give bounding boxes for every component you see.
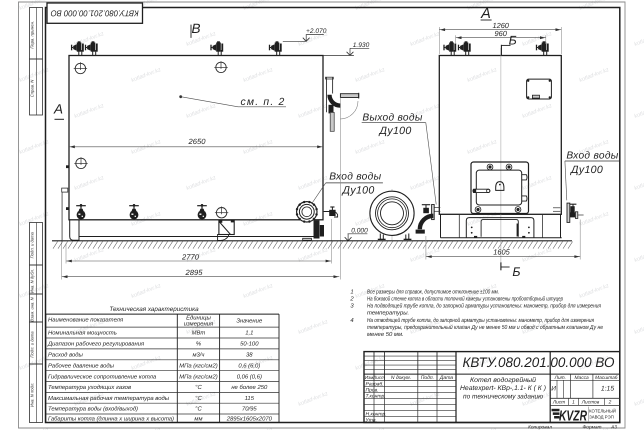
svg-text:1: 1	[350, 288, 353, 295]
svg-text:Вход воды: Вход воды	[329, 172, 381, 183]
svg-text:Утв.: Утв.	[366, 418, 377, 424]
svg-text:2650: 2650	[188, 137, 207, 146]
svg-text:На подводящей трубе котла, д: На подводящей трубе котла, до запорной а…	[367, 302, 602, 309]
svg-text:КОТЕЛЬНЫЙ: КОТЕЛЬНЫЙ	[589, 409, 616, 414]
svg-text:м3/ч: м3/ч	[192, 351, 204, 358]
svg-text:Лит.: Лит.	[554, 375, 566, 381]
svg-text:Температура уходящих газов: Температура уходящих газов	[48, 384, 131, 391]
svg-text:Выход воды: Выход воды	[362, 112, 422, 123]
svg-text:МВт: МВт	[192, 330, 206, 337]
svg-text:Гидравлическое сопротивление к: Гидравлическое сопротивление котла	[48, 373, 157, 380]
svg-text:температуры, предохранительный: температуры, предохранительный клапан Ду…	[367, 324, 604, 331]
svg-text:1:15: 1:15	[601, 386, 614, 393]
svg-text:2: 2	[608, 400, 612, 406]
svg-text:0,06 (0,6): 0,06 (0,6)	[237, 373, 262, 380]
svg-text:Дата: Дата	[439, 375, 453, 381]
svg-text:менее 50 мм.: менее 50 мм.	[367, 331, 404, 338]
svg-text:1.930: 1.930	[353, 42, 370, 49]
svg-text:Температура воды (вход/выход): Температура воды (вход/выход)	[48, 406, 138, 413]
svg-text:1605: 1605	[493, 248, 510, 257]
svg-text:Лист: Лист	[552, 400, 565, 406]
svg-text:Максимальная рабочая температу: Максимальная рабочая температура воды	[48, 395, 170, 402]
svg-text:температуры.: температуры.	[367, 310, 409, 316]
svg-text:0.000: 0.000	[351, 227, 368, 234]
svg-text:Инв. N подл.: Инв. N подл.	[29, 383, 34, 407]
svg-text:На боковой стенке котла в обла: На боковой стенке котла в области топочн…	[367, 295, 564, 302]
svg-text:Техническая характеристика: Техническая характеристика	[109, 306, 199, 313]
svg-text:Единицы: Единицы	[186, 314, 211, 321]
svg-text:0,6 (6,0): 0,6 (6,0)	[238, 362, 260, 369]
svg-text:Габариты котла (длинна х ширин: Габариты котла (длинна х ширина х высота…	[48, 415, 174, 422]
svg-text:Вход воды: Вход воды	[566, 151, 618, 162]
svg-text:Формат: Формат	[582, 424, 601, 430]
svg-text:КВТУ.080.201.00.000 ВО: КВТУ.080.201.00.000 ВО	[50, 9, 138, 19]
svg-text:Все размеры для справок, допус: Все размеры для справок, допустимое откл…	[367, 288, 499, 295]
svg-text:1,1: 1,1	[245, 330, 253, 337]
svg-text:ЗАВОД РЭП: ЗАВОД РЭП	[589, 414, 614, 419]
svg-text:Ду100: Ду100	[341, 185, 374, 197]
svg-text:МПа (кгс/см2): МПа (кгс/см2)	[179, 373, 218, 380]
svg-text:На отводящей трубе котла, до з: На отводящей трубе котла, до запорной ар…	[367, 317, 595, 324]
svg-text:Взам. инв. N: Взам. инв. N	[29, 296, 34, 321]
svg-text:Ду100: Ду100	[570, 164, 603, 176]
svg-text:Подп. и дата: Подп. и дата	[29, 231, 34, 258]
svg-text:2895х1605х2070: 2895х1605х2070	[226, 415, 273, 422]
svg-text:Подп. и дата: Подп. и дата	[29, 331, 34, 358]
svg-text:1: 1	[572, 400, 575, 406]
svg-text:Расход воды: Расход воды	[48, 351, 84, 358]
svg-text:70/95: 70/95	[242, 406, 257, 413]
svg-text:МПа (кгс/см2): МПа (кгс/см2)	[179, 362, 218, 369]
svg-text:Копировал: Копировал	[528, 424, 552, 430]
svg-text:Б: Б	[509, 33, 517, 47]
svg-text:Наименование показателя: Наименование показателя	[48, 317, 124, 324]
svg-text:N докум.: N докум.	[391, 375, 411, 381]
svg-text:2895: 2895	[185, 268, 204, 277]
svg-text:°С: °С	[195, 384, 202, 391]
svg-text:°С: °С	[195, 406, 202, 413]
svg-text:по техническому заданию: по техническому заданию	[463, 393, 543, 400]
svg-text:Рабочее давление воды: Рабочее давление воды	[48, 362, 115, 369]
svg-text:Ду100: Ду100	[378, 125, 411, 137]
svg-text:Номинальная мощность: Номинальная мощность	[48, 330, 117, 337]
svg-text:Подп.: Подп.	[421, 375, 434, 381]
svg-text:Котел водогрейный: Котел водогрейный	[470, 376, 536, 384]
svg-text:+2.070: +2.070	[306, 28, 327, 35]
svg-text:%: %	[196, 341, 201, 348]
svg-text:38: 38	[246, 351, 253, 358]
svg-text:Heatexpert- КВр-,1.1- К ( К ): Heatexpert- КВр-,1.1- К ( К )	[460, 385, 546, 392]
svg-text:Значение: Значение	[236, 318, 263, 325]
svg-text:2: 2	[349, 295, 354, 302]
svg-text:2770: 2770	[181, 252, 200, 261]
svg-text:KVZR: KVZR	[559, 408, 587, 424]
svg-text:115: 115	[245, 395, 255, 402]
svg-text:Перв. примен.: Перв. примен.	[29, 21, 34, 49]
svg-text:Т.контр.: Т.контр.	[366, 394, 386, 400]
svg-text:Б: Б	[512, 265, 520, 279]
svg-text:Лист: Лист	[372, 375, 385, 380]
svg-text:Листов: Листов	[581, 400, 600, 406]
svg-text:960: 960	[495, 29, 508, 38]
svg-text:Масштаб: Масштаб	[595, 375, 618, 381]
svg-text:Масса: Масса	[575, 375, 590, 381]
svg-text:°С: °С	[195, 395, 202, 402]
svg-text:КВТУ.080.201.00.000 ВО: КВТУ.080.201.00.000 ВО	[463, 355, 615, 370]
svg-text:50-100: 50-100	[240, 341, 259, 348]
svg-text:Диапазон рабочего регулировани: Диапазон рабочего регулирования	[47, 341, 145, 348]
svg-text:И: И	[551, 386, 556, 393]
svg-text:не более 250: не более 250	[231, 384, 268, 391]
svg-text:мм: мм	[194, 416, 202, 422]
svg-text:В: В	[191, 21, 200, 36]
svg-text:см. п. 2: см. п. 2	[241, 97, 286, 108]
svg-text:Инв. N дубл.: Инв. N дубл.	[29, 269, 34, 293]
svg-text:А3: А3	[610, 424, 617, 430]
svg-text:измерения: измерения	[184, 322, 214, 328]
svg-text:А: А	[53, 102, 63, 117]
svg-text:Справ. N: Справ. N	[29, 79, 34, 97]
